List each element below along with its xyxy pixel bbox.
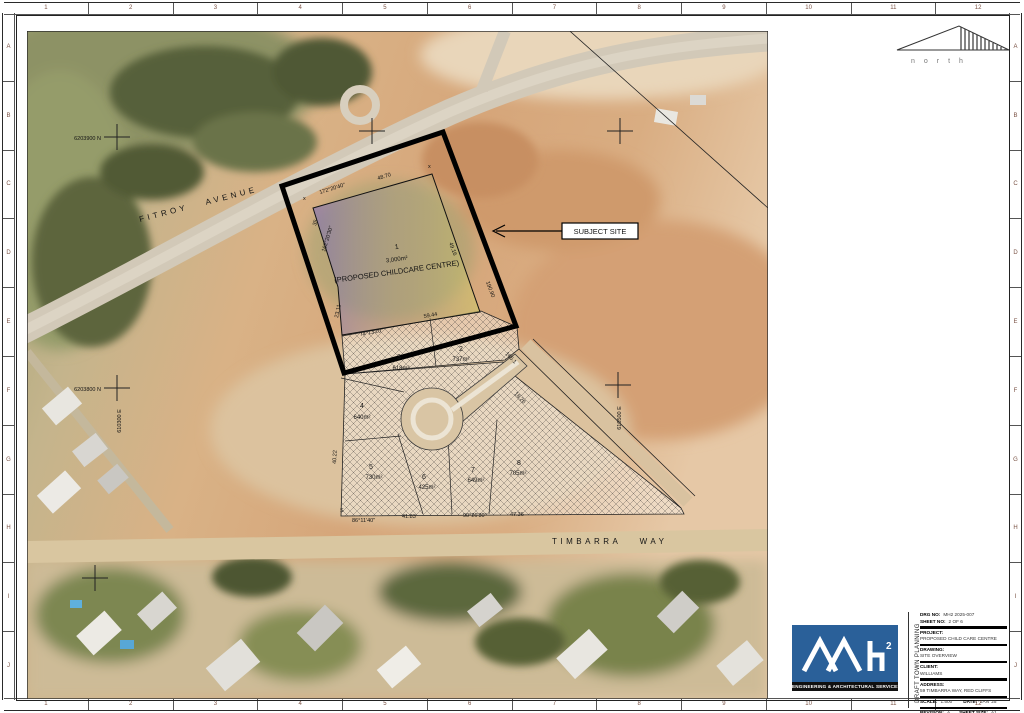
title-block-fields: DRG NO: MH2 2025-007 SHEET NO: 2 OF 6 PR… [920, 612, 1007, 713]
divider [920, 661, 1007, 663]
logo-superscript: 2 [886, 641, 892, 652]
lot-number: 5 [369, 464, 373, 471]
lot-number: 3 [397, 354, 401, 361]
lot-number: 4 [360, 403, 364, 410]
lot-area: 618m² [392, 366, 409, 372]
field-value: 1:500 [940, 699, 952, 706]
site-plan-map: 6203900 N 6203800 N 610300 E 610500 E FI… [0, 0, 1024, 713]
north-arrow: north [893, 20, 1015, 66]
coord-label: 6203900 N [74, 136, 101, 142]
field-drawing: DRAWING: SITE OVERVIEW [920, 647, 1007, 660]
lot-number: 7 [471, 467, 475, 474]
field-value: JAN '25 [980, 699, 996, 706]
field-project: PROJECT: PROPOSED CHILD CARE CENTRE [920, 630, 1007, 643]
logo-tagline: ENGINEERING & ARCHITECTURAL SERVICES [792, 682, 898, 691]
lot-number: 6 [422, 474, 426, 481]
lot-number: 8 [517, 460, 521, 467]
lot-area: 425m² [418, 485, 435, 491]
coord-label: 610500 E [617, 406, 623, 430]
field-sheet-no: SHEET NO: 2 OF 6 [920, 619, 1007, 626]
field-value: SITE OVERVIEW [920, 653, 1007, 659]
coord-label: 6203800 N [74, 387, 101, 393]
subject-site-label: SUBJECT SITE [574, 227, 627, 236]
divider [920, 678, 1007, 680]
logo-mark: 2 [792, 625, 898, 682]
field-value: WILLIAMS [920, 671, 1007, 677]
dim-length: 47.36 [510, 512, 524, 518]
field-scale-date: SCALE: 1:500 DATE: JAN '25 [920, 699, 1007, 706]
draft-stamp: DRAFT TOWN PLANNING [908, 612, 920, 708]
dim-length: 41.83 [402, 514, 416, 520]
dim-length: 40.22 [332, 450, 339, 464]
survey-x-mark: x [428, 164, 431, 170]
north-label: north [911, 58, 972, 65]
company-logo: 2 ENGINEERING & ARCHITECTURAL SERVICES [792, 625, 898, 691]
lot-area: 737m² [452, 357, 469, 363]
field-client: CLIENT: WILLIAMS [920, 664, 1007, 677]
survey-x-mark: x [303, 196, 306, 202]
lot-area: 649m² [467, 478, 484, 484]
divider [920, 644, 1007, 646]
title-block: 2 ENGINEERING & ARCHITECTURAL SERVICES D… [788, 610, 1007, 700]
field-label: SCALE: [920, 699, 937, 706]
lot-area: 705m² [509, 471, 526, 477]
field-label: DATE: [963, 699, 977, 706]
dim-bearing: 90°26'30" [463, 513, 487, 519]
field-value: PROPOSED CHILD CARE CENTRE [920, 636, 1007, 642]
dim-bearing: 86°11'40" [352, 518, 375, 524]
lot-area: 640m² [353, 415, 370, 421]
coord-label: 610300 E [117, 409, 123, 433]
dim-mark: S [340, 508, 344, 514]
field-address: ADDRESS: 59 TIMBARRA WAY, RED CLIFFS [920, 682, 1007, 695]
field-value: 2 OF 6 [949, 619, 963, 626]
divider [920, 696, 1007, 698]
divider [920, 626, 1007, 628]
lot-number: 2 [459, 346, 463, 353]
divider [920, 707, 1007, 709]
street-label-timbarra: TIMBARRA WAY [552, 537, 667, 546]
drawing-sheet: 1 2 3 4 5 6 7 8 9 10 11 12 1 2 3 4 5 6 7… [0, 0, 1024, 713]
lot-area: 730m² [365, 475, 382, 481]
field-label: SHEET NO: [920, 619, 946, 626]
field-value: 59 TIMBARRA WAY, RED CLIFFS [920, 688, 1007, 694]
